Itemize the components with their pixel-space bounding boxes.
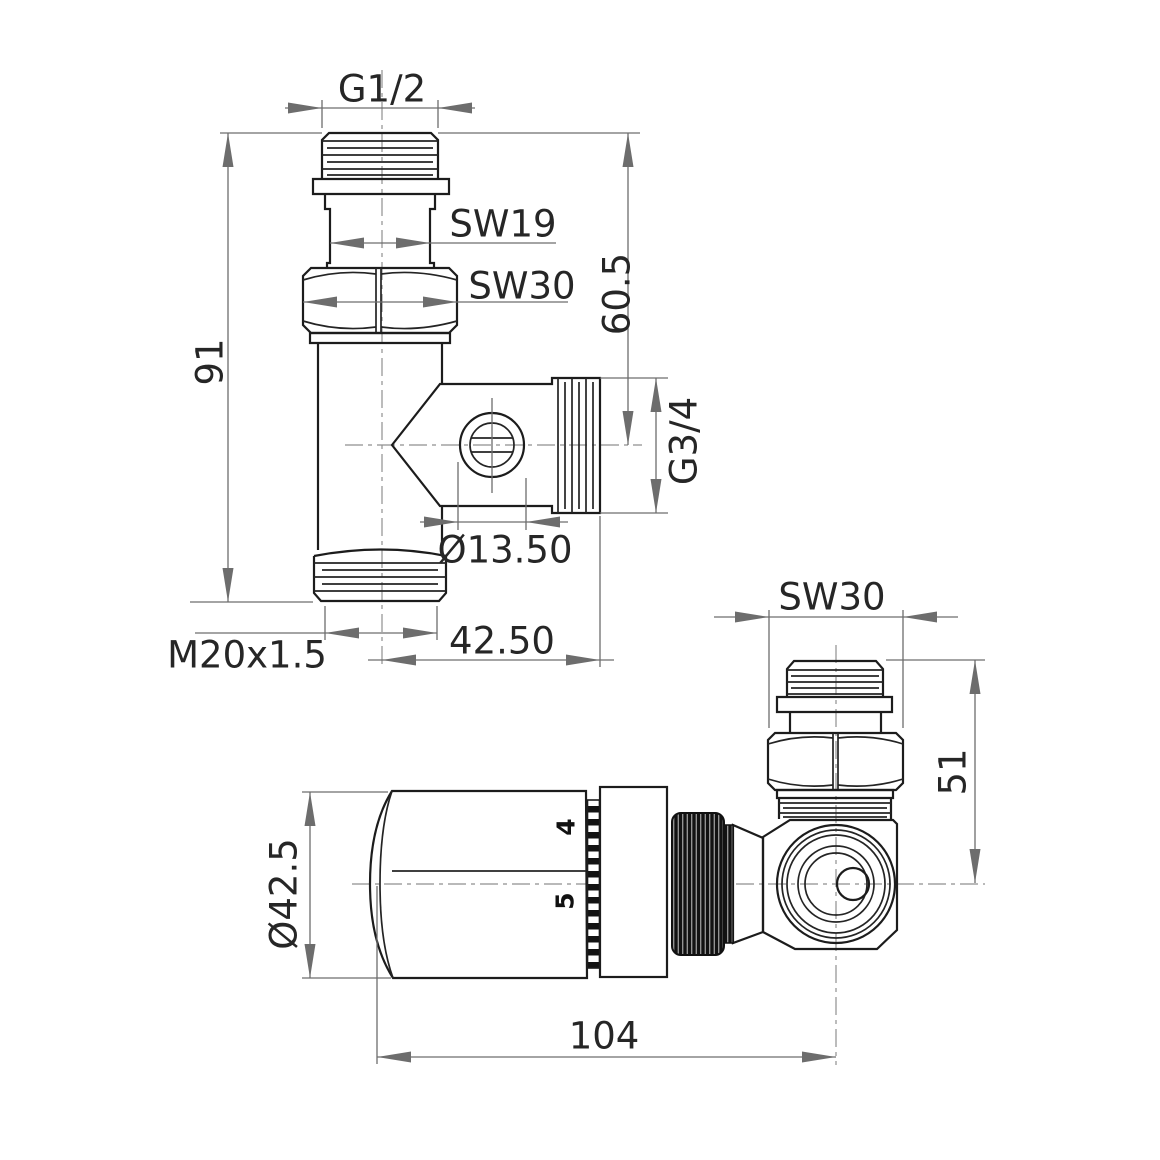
label-wrench-small: SW19	[449, 203, 556, 246]
dim-m20: M20x1.5	[167, 606, 437, 677]
dim-sw19: SW19	[330, 203, 557, 249]
knurled-nut-step	[724, 825, 733, 943]
label-total-length: 104	[569, 1015, 640, 1058]
valve-front-view: G1/2 SW19 SW30 91 60.5 G3/4	[167, 68, 705, 677]
label-bottom-thread: M20x1.5	[167, 634, 327, 677]
scale-digit-5: 5	[551, 892, 580, 909]
scale-digit-4: 4	[552, 818, 581, 835]
valve-body-side: 4 5	[370, 661, 903, 978]
port-collar	[777, 697, 892, 712]
body-thread-crests	[779, 803, 891, 817]
neck-sw19	[325, 194, 435, 268]
dim-head-diameter: Ø42.5	[263, 792, 392, 978]
label-outlet-height: 60.5	[596, 253, 639, 335]
bottom-thread-crests	[314, 563, 446, 591]
label-wrench-large: SW30	[468, 265, 575, 308]
label-total-height: 91	[189, 338, 232, 385]
bottom-thread-outline	[314, 550, 446, 602]
dim-91: 91	[189, 133, 323, 602]
top-thread-crests	[322, 141, 438, 175]
scale-ratchet-strip	[588, 800, 600, 968]
knurled-nut	[672, 813, 724, 955]
technical-drawing-svg: G1/2 SW19 SW30 91 60.5 G3/4	[0, 0, 1160, 1160]
label-wrench-side: SW30	[778, 576, 885, 619]
dim-sw30-front: SW30	[303, 265, 576, 308]
centerlines-front	[345, 70, 642, 668]
label-outlet-length: 42.50	[449, 620, 555, 663]
label-head-diameter: Ø42.5	[263, 838, 306, 950]
drawing-sheet: G1/2 SW19 SW30 91 60.5 G3/4	[0, 0, 1160, 1160]
dim-g12: G1/2	[285, 68, 475, 129]
hex-collar	[310, 333, 450, 343]
tube-body	[318, 343, 442, 550]
port-thread-crests	[787, 670, 883, 694]
hex-collar-side	[777, 790, 893, 798]
top-thread-outline	[322, 133, 438, 179]
label-port-height: 51	[932, 748, 975, 795]
label-side-thread: G3/4	[663, 397, 706, 485]
top-collar	[313, 179, 449, 194]
label-bore: Ø13.50	[437, 529, 572, 572]
port-thread-outline	[787, 661, 883, 697]
valve-side-view-with-thermostat: 4 5 SW30 51 Ø42.5 1	[263, 576, 986, 1066]
head-collar-ring	[600, 787, 667, 977]
dim-51: 51	[886, 660, 985, 883]
label-top-thread: G1/2	[338, 68, 426, 111]
hex-facet-edges	[376, 268, 381, 333]
centerlines-side	[352, 645, 985, 1065]
